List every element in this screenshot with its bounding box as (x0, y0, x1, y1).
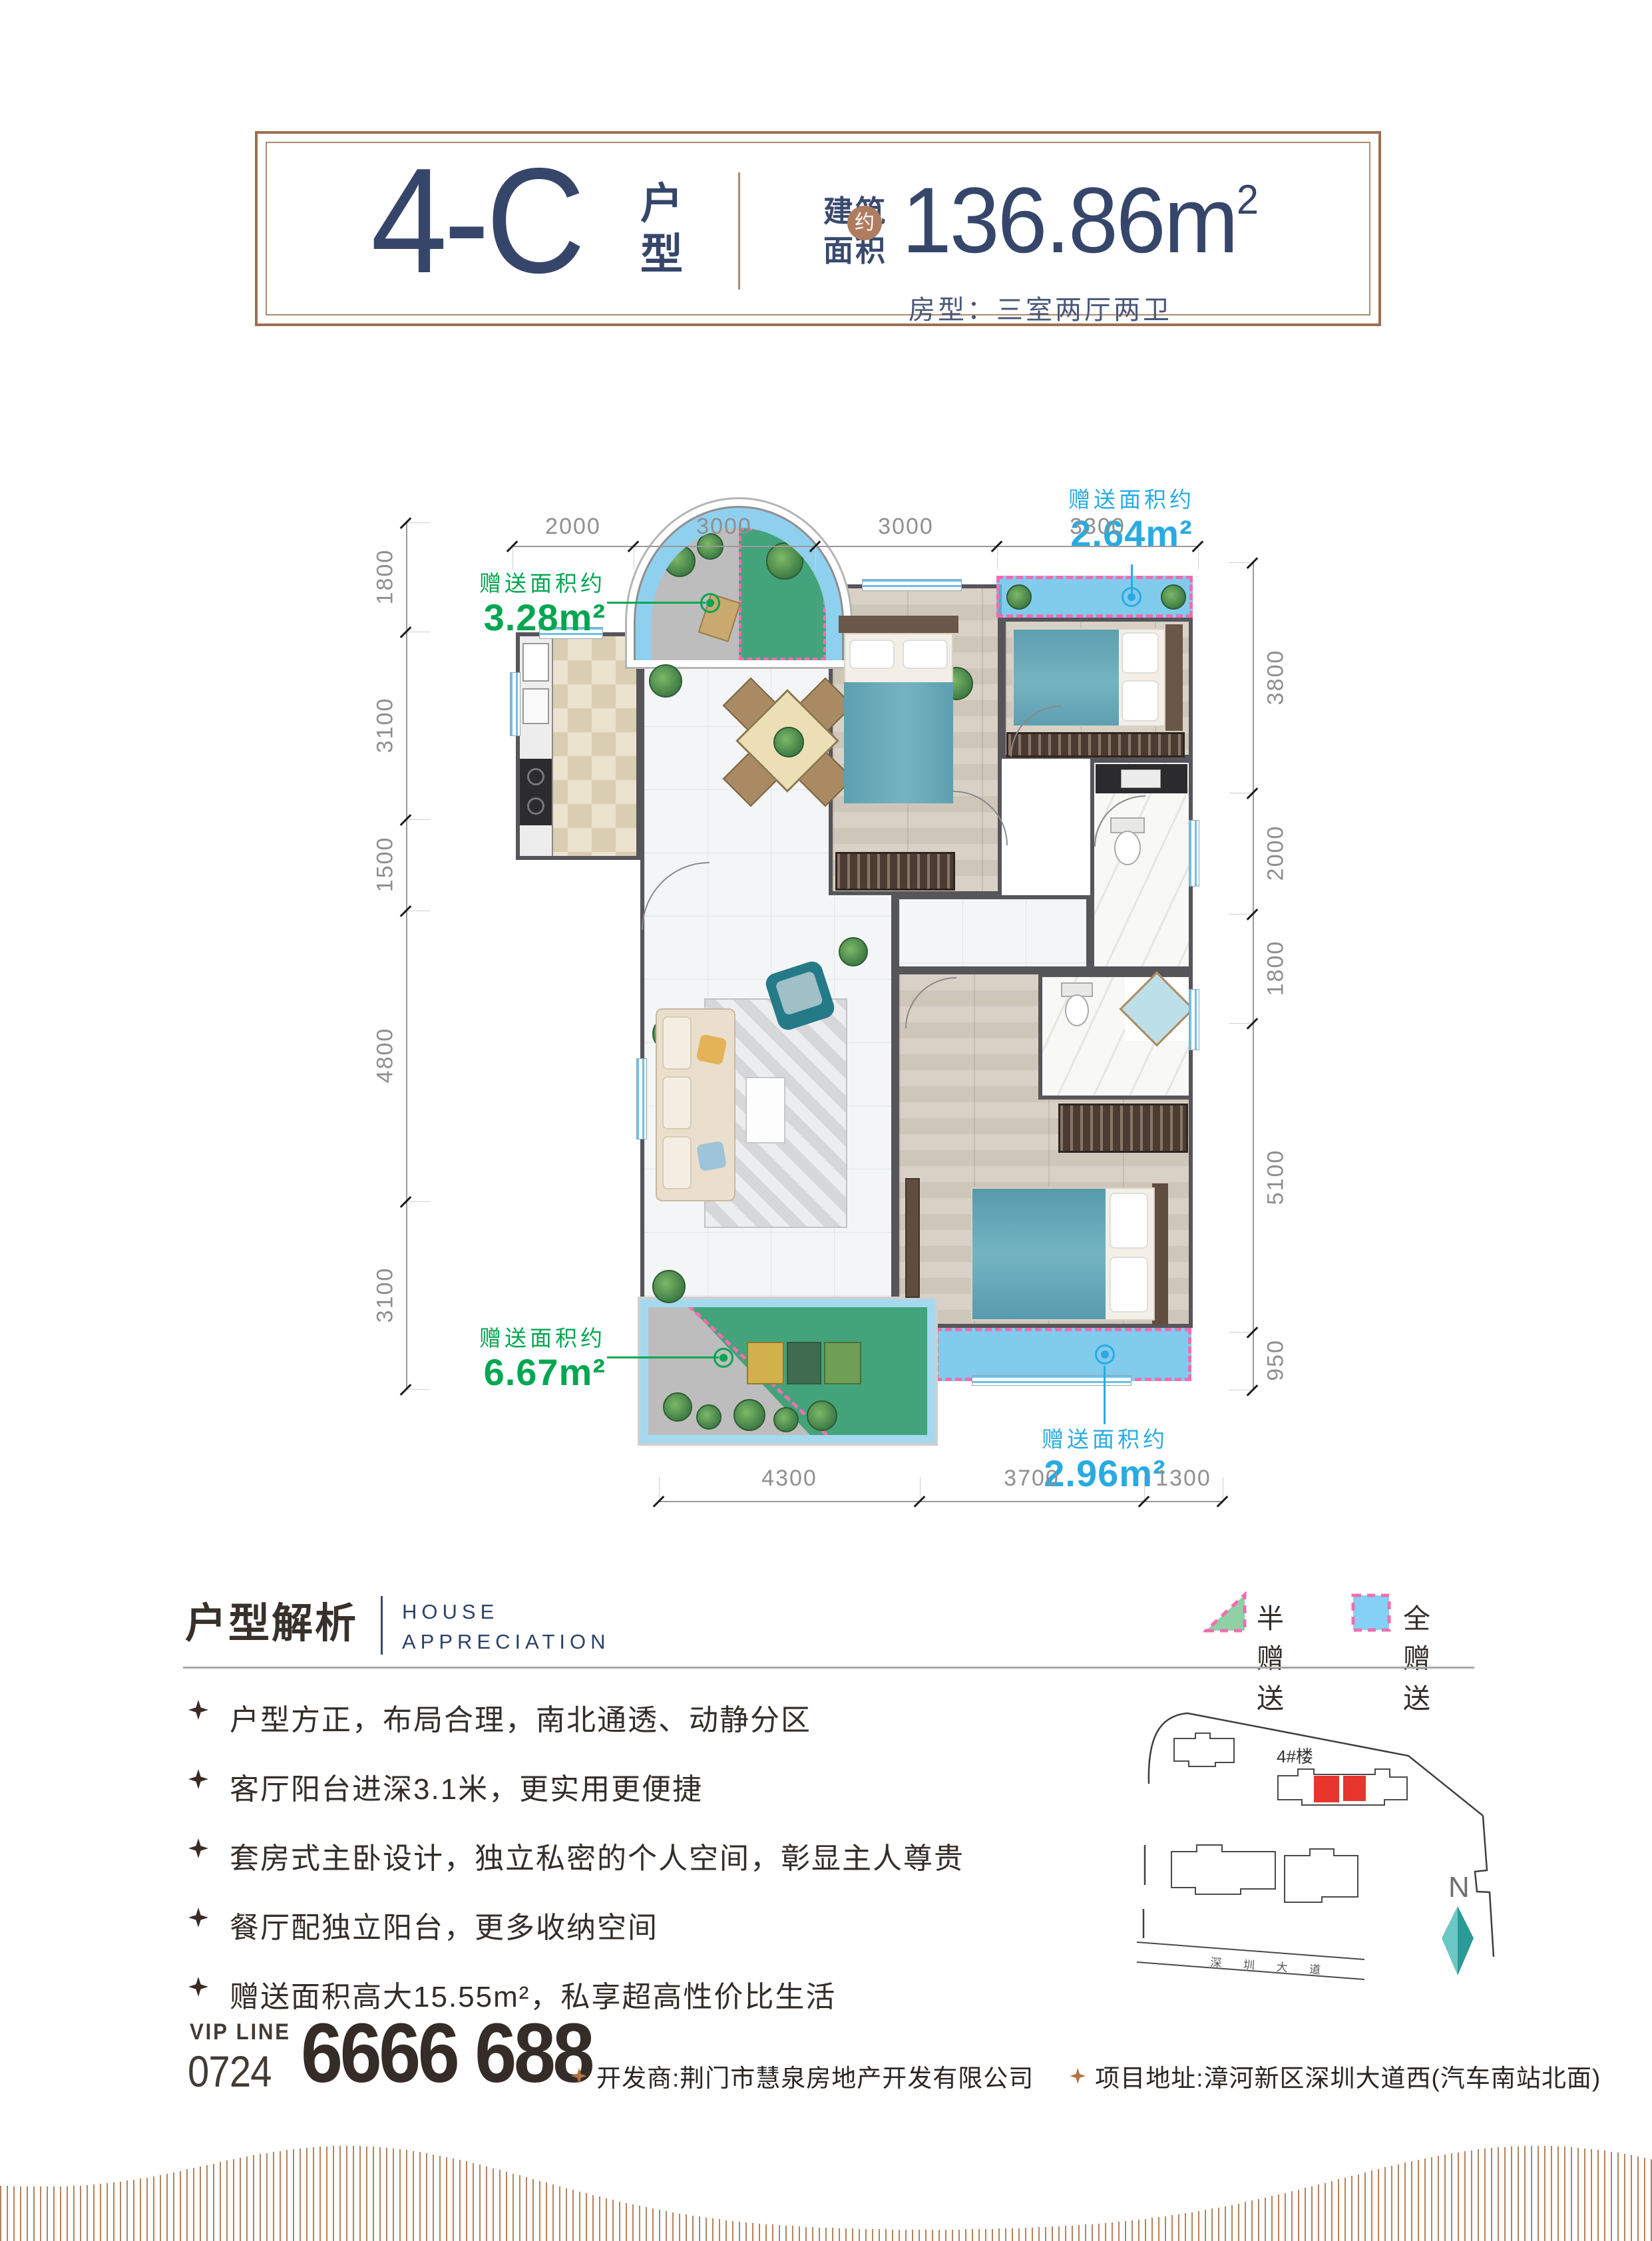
wave-line (493, 2168, 494, 2241)
wave-line (819, 2228, 820, 2241)
wave-line (679, 2214, 680, 2241)
wave-line (1171, 2215, 1173, 2241)
dimension-line (1253, 562, 1254, 1390)
wave-line (1344, 2178, 1346, 2241)
subtitle-line1: HOUSE (402, 1600, 499, 1623)
wave-line (1078, 2225, 1080, 2241)
wave-line (885, 2229, 887, 2241)
compass-label: N (1448, 1871, 1470, 1904)
wave-line (1398, 2164, 1399, 2241)
wave-line (1198, 2211, 1199, 2241)
wave-line (1018, 2228, 1020, 2241)
wave-line (1311, 2186, 1313, 2241)
site-map: 4#楼 深 圳 大 道 N (1110, 1677, 1510, 1990)
wave-line (266, 2153, 268, 2241)
wave-line (499, 2170, 501, 2241)
wave-line (1637, 2156, 1639, 2241)
wave-line (306, 2148, 308, 2241)
wave-line (473, 2163, 474, 2241)
diamond-icon (1070, 2068, 1086, 2084)
wave-line (459, 2160, 461, 2241)
dimension-label: 2000 (1263, 810, 1289, 897)
dimension-line (406, 522, 407, 1389)
wave-line (552, 2184, 554, 2241)
area-number: 136.86m (902, 168, 1237, 272)
wave-line (280, 2151, 281, 2241)
wave-line (1238, 2204, 1239, 2241)
wave-line (739, 2222, 740, 2241)
wave-line (972, 2229, 973, 2241)
highlighted-unit-building (1314, 1776, 1339, 1802)
wave-line (572, 2190, 574, 2241)
wave-line (659, 2210, 660, 2241)
wave-line (33, 2186, 35, 2241)
wave-line (1052, 2226, 1053, 2241)
wave-line (346, 2146, 347, 2241)
wave-line (912, 2230, 913, 2241)
wave-line (1138, 2220, 1139, 2241)
wave-line (1012, 2228, 1013, 2241)
wave-line (399, 2149, 401, 2241)
wave-line (100, 2184, 101, 2241)
wave-line (233, 2159, 234, 2241)
wave-line (439, 2156, 441, 2241)
wave-line (965, 2229, 966, 2241)
dimension-line (659, 1501, 1223, 1502)
wave-line (732, 2221, 733, 2241)
wave-line (619, 2202, 620, 2241)
wave-line (406, 2150, 407, 2241)
wave-line (1278, 2194, 1279, 2241)
wave-line (113, 2182, 114, 2241)
feature-text: 户型方正，布局合理，南北通透、动静分区 (230, 1696, 811, 1738)
wave-line (805, 2227, 807, 2241)
building-outline (1174, 1733, 1234, 1766)
wave-line (1271, 2196, 1273, 2241)
wave-line (792, 2226, 793, 2241)
wave-line (745, 2222, 747, 2241)
wave-line (166, 2174, 168, 2241)
header-divider (738, 172, 740, 290)
wave-line (80, 2186, 81, 2241)
wave-line (1231, 2205, 1233, 2241)
wave-line (985, 2229, 986, 2241)
wave-line (606, 2198, 607, 2241)
wave-line (812, 2227, 813, 2241)
dimension-extension (659, 1477, 660, 1500)
dimension-label: 4300 (746, 1466, 833, 1492)
wave-line (938, 2230, 940, 2241)
wave-line (1132, 2220, 1133, 2241)
wave-line (433, 2154, 434, 2241)
wave-line (1145, 2219, 1146, 2241)
dimension-extension (1198, 547, 1199, 570)
wave-line (592, 2195, 594, 2241)
wave-line (1331, 2181, 1333, 2241)
wave-line (1211, 2208, 1213, 2241)
dimension-extension (634, 547, 634, 570)
dimension-extension (1229, 1023, 1251, 1024)
wave-line (1085, 2224, 1086, 2241)
building-label: 4#楼 (1277, 1746, 1313, 1766)
wave-line (1597, 2150, 1599, 2241)
dimension-label: 5100 (1263, 1134, 1289, 1221)
wave-line (852, 2228, 853, 2241)
dimension-label: 1800 (373, 534, 399, 620)
wave-line (865, 2229, 867, 2241)
dimension-layer: 2000300030003300430037001300180031001500… (373, 359, 1344, 1564)
dimension-extension (1229, 914, 1251, 915)
wave-line (1165, 2216, 1166, 2241)
wave-line (825, 2228, 827, 2241)
vip-line-label: VIP LINE (190, 2019, 291, 2045)
wave-line (1518, 2146, 1519, 2241)
wave-line (1424, 2158, 1426, 2241)
wave-line (200, 2166, 201, 2241)
wave-line (1571, 2147, 1572, 2241)
wave-line (1404, 2162, 1406, 2241)
wave-line (0, 2186, 1, 2241)
wave-line (1185, 2213, 1186, 2241)
developer-text: 开发商:荆门市慧泉房地产开发有限公司 (596, 2058, 1034, 2094)
wave-line (752, 2223, 753, 2241)
wave-line (120, 2182, 121, 2241)
wave-line (539, 2181, 540, 2241)
wave-line (419, 2152, 421, 2241)
wave-line (845, 2228, 847, 2241)
wave-line (47, 2186, 48, 2241)
wave-line (1125, 2221, 1126, 2241)
wave-line (1038, 2227, 1040, 2241)
wave-line (240, 2158, 241, 2241)
wave-line (998, 2228, 1000, 2241)
wave-line (879, 2229, 880, 2241)
wave-line (226, 2160, 228, 2241)
wave-line (1471, 2150, 1472, 2241)
wave-line (379, 2147, 381, 2241)
bullet-star-icon (188, 1700, 208, 1720)
wave-line (1391, 2166, 1392, 2241)
bullet-star-icon (188, 1908, 208, 1928)
dimension-extension (513, 547, 513, 570)
wave-line (1025, 2228, 1026, 2241)
wave-line (725, 2220, 727, 2241)
area-sup: 2 (1237, 177, 1257, 223)
wave-line (899, 2230, 900, 2241)
wave-line (1451, 2153, 1452, 2241)
dimension-extension (920, 1477, 921, 1500)
wave-line (1305, 2188, 1306, 2241)
wave-line (872, 2229, 873, 2241)
building-outline (1171, 1845, 1275, 1894)
wave-line (366, 2146, 367, 2241)
wave-line (1631, 2155, 1632, 2241)
wave-line (393, 2148, 394, 2241)
wave-line (1524, 2146, 1526, 2241)
vip-area-code: 0724 (188, 2046, 272, 2097)
wave-line (1538, 2146, 1539, 2241)
wave-line (1005, 2228, 1006, 2241)
wave-line (1225, 2206, 1226, 2241)
feature-item: 客厅阳台进深3.1米，更实用更便捷 (188, 1765, 964, 1834)
dimension-extension (1229, 562, 1251, 563)
wave-line (513, 2174, 514, 2241)
wave-line (359, 2146, 361, 2241)
dimension-label: 1800 (1263, 925, 1289, 1012)
wave-line (126, 2180, 128, 2241)
section-subtitle: HOUSE APPRECIATION (402, 1597, 610, 1657)
wave-line (978, 2229, 980, 2241)
wave-line (353, 2146, 354, 2241)
dimension-label: 3100 (373, 1252, 399, 1338)
dimension-line (513, 546, 1198, 547)
wave-line (1325, 2183, 1326, 2241)
wave-line (220, 2162, 221, 2241)
dimension-extension (1229, 793, 1251, 793)
wave-line (1478, 2149, 1479, 2241)
wave-line (1258, 2199, 1259, 2241)
vip-phone-number: 6666 688 (301, 2011, 592, 2095)
wave-line (1291, 2191, 1293, 2241)
wave-line (799, 2226, 800, 2241)
wave-line (1438, 2156, 1439, 2241)
wave-line (426, 2153, 427, 2241)
wave-line (639, 2206, 640, 2241)
wave-line (313, 2147, 314, 2241)
wave-line (153, 2176, 154, 2241)
wave-line (466, 2161, 467, 2241)
wave-line (1584, 2148, 1585, 2241)
feature-item: 套房式主卧设计，独立私密的个人空间，彰显主人尊贵 (188, 1834, 964, 1904)
bullet-star-icon (188, 1769, 208, 1789)
wave-line (672, 2212, 674, 2241)
wave-line (1444, 2154, 1446, 2241)
wave-line (632, 2204, 634, 2241)
wave-line (1604, 2150, 1605, 2241)
wave-line (180, 2171, 181, 2241)
legend-half-gift: 半赠送 (1203, 1591, 1247, 1633)
wave-line (586, 2193, 587, 2241)
dimension-extension (407, 522, 430, 523)
wave-line (559, 2186, 560, 2241)
wave-line (1431, 2157, 1432, 2241)
wave-line (486, 2166, 487, 2241)
wave-line (1045, 2227, 1046, 2241)
wave-line (945, 2230, 946, 2241)
wave-line (1491, 2148, 1492, 2241)
diamond-icon (571, 2068, 587, 2084)
wave-line (566, 2188, 567, 2241)
area-label-bottom: 面积 (823, 234, 887, 268)
wave-line (1504, 2147, 1506, 2241)
wave-line (712, 2218, 714, 2241)
section-title: 户型解析 (185, 1589, 358, 1649)
wave-line (1557, 2146, 1559, 2241)
wave-line (1371, 2170, 1372, 2241)
wave-line (1338, 2179, 1339, 2241)
bullet-star-icon (188, 1977, 208, 1997)
section-divider (381, 1596, 383, 1655)
wave-line (1511, 2146, 1512, 2241)
wave-line (73, 2186, 75, 2241)
wave-line (1364, 2172, 1366, 2241)
wave-line (286, 2150, 288, 2241)
compass-needle-icon (1442, 1906, 1458, 1975)
wave-line (1458, 2152, 1459, 2241)
dimension-extension (1229, 1390, 1251, 1390)
wave-line (300, 2148, 301, 2241)
wave-line (186, 2169, 188, 2241)
road-line (1137, 1942, 1364, 1959)
developer-info: 开发商:荆门市慧泉房地产开发有限公司 项目地址:漳河新区深圳大道西(汽车南站北面… (571, 2058, 1601, 2094)
wave-line (1484, 2148, 1486, 2241)
wave-line (273, 2152, 274, 2241)
dimension-label: 1500 (373, 821, 399, 908)
wave-line (772, 2224, 773, 2241)
page: 4-C 户型 建筑面积 约 136.86m2 房型：三室两厅两卫 (0, 0, 1652, 2241)
wave-line (1564, 2146, 1565, 2241)
building-4-outline (1278, 1769, 1407, 1805)
wave-line (13, 2186, 15, 2241)
road-label: 深 圳 大 道 (1210, 1956, 1331, 1977)
wave-line (140, 2178, 141, 2241)
wave-line (1544, 2146, 1546, 2241)
wave-line (506, 2172, 507, 2241)
dimension-label: 4800 (373, 1012, 399, 1099)
bullet-star-icon (188, 1838, 208, 1858)
wave-line (579, 2192, 580, 2241)
wave-line (1112, 2222, 1113, 2241)
wave-line (952, 2230, 953, 2241)
wave-line (1617, 2152, 1619, 2241)
wave-line (333, 2146, 334, 2241)
wave-line (666, 2211, 667, 2241)
approx-badge: 约 (847, 206, 882, 240)
wave-line (1251, 2200, 1253, 2241)
dimension-extension (407, 632, 430, 632)
dimension-label: 3800 (1263, 634, 1289, 721)
wave-line (1318, 2184, 1319, 2241)
wave-line (1118, 2222, 1120, 2241)
wave-line (839, 2228, 840, 2241)
wave-line (785, 2226, 787, 2241)
wave-line (93, 2184, 95, 2241)
legend-full-gift: 全赠送 (1350, 1591, 1394, 1633)
wave-line (1065, 2226, 1066, 2241)
wave-line (20, 2186, 21, 2241)
wave-line (446, 2157, 447, 2241)
feature-item: 户型方正，布局合理，南北通透、动静分区 (188, 1696, 964, 1765)
half-gift-icon (1203, 1591, 1247, 1633)
wave-line (1092, 2224, 1093, 2241)
wave-decoration (0, 2105, 1652, 2241)
wave-line (626, 2203, 627, 2241)
wave-line (160, 2175, 161, 2241)
wave-line (319, 2146, 321, 2241)
wave-line (1351, 2176, 1352, 2241)
wave-line (1058, 2226, 1060, 2241)
wave-line (1191, 2212, 1193, 2241)
wave-line (1531, 2146, 1532, 2241)
wave-line (133, 2180, 134, 2241)
wave-line (765, 2224, 767, 2241)
wave-line (1205, 2210, 1206, 2241)
area-value: 136.86m2 (902, 174, 1257, 267)
wave-line (892, 2230, 893, 2241)
wave-line (293, 2149, 294, 2241)
wave-line (1032, 2228, 1033, 2241)
wave-line (213, 2164, 214, 2241)
wave-line (1298, 2190, 1299, 2241)
wave-line (1611, 2152, 1612, 2241)
wave-line (339, 2146, 341, 2241)
wave-line (692, 2216, 694, 2241)
dimension-extension (1229, 1332, 1251, 1332)
wave-line (413, 2151, 414, 2241)
wave-line (759, 2224, 760, 2241)
wave-line (1418, 2160, 1419, 2241)
wave-line (532, 2179, 534, 2241)
wave-line (1644, 2158, 1645, 2241)
wave-line (479, 2164, 481, 2241)
wave-line (699, 2216, 700, 2241)
wave-line (1072, 2226, 1073, 2241)
wave-line (1285, 2193, 1286, 2241)
wave-line (526, 2177, 527, 2241)
dimension-extension (407, 911, 430, 911)
floor-plan: 赠送面积约 3.28m² 赠送面积约 2.64m² 赠送面积约 6.67m² 赠… (373, 359, 1344, 1564)
wave-line (706, 2218, 707, 2241)
wave-line (992, 2229, 993, 2241)
wave-line (87, 2185, 88, 2241)
wave-line (67, 2186, 68, 2241)
wave-line (925, 2230, 927, 2241)
wave-line (206, 2165, 208, 2241)
wave-line (1378, 2169, 1379, 2241)
wave-line (146, 2178, 148, 2241)
wave-line (246, 2156, 248, 2241)
dimension-extension (407, 1389, 430, 1390)
wave-line (1158, 2217, 1159, 2241)
dimension-label: 3100 (373, 682, 399, 769)
wave-line (173, 2172, 174, 2241)
wave-line (958, 2230, 960, 2241)
wave-line (719, 2219, 720, 2241)
wave-line (60, 2186, 61, 2241)
dimension-label: 3000 (863, 514, 949, 540)
feature-list: 户型方正，布局合理，南北通透、动静分区 客厅阳台进深3.1米，更实用更便捷 套房… (188, 1696, 964, 2042)
dimension-label: 950 (1263, 1317, 1289, 1404)
building-outline (1285, 1849, 1358, 1902)
site-boundary (1475, 1816, 1494, 1957)
room-type: 房型：三室两厅两卫 (909, 288, 1172, 327)
wave-line (652, 2208, 654, 2241)
wave-line (1218, 2208, 1219, 2241)
wave-line (546, 2182, 547, 2241)
wave-line (373, 2146, 374, 2241)
address-text: 项目地址:漳河新区深圳大道西(汽车南站北面) (1095, 2058, 1601, 2094)
wave-line (326, 2146, 327, 2241)
wave-line (1105, 2223, 1106, 2241)
wave-line (1245, 2202, 1246, 2241)
wave-line (779, 2225, 780, 2241)
dimension-extension (815, 547, 816, 570)
wave-line (453, 2158, 454, 2241)
unit-code: 4-C (371, 146, 582, 296)
dimension-label: 3700 (988, 1466, 1075, 1492)
wave-line (1591, 2149, 1592, 2241)
wave-line (53, 2186, 55, 2241)
